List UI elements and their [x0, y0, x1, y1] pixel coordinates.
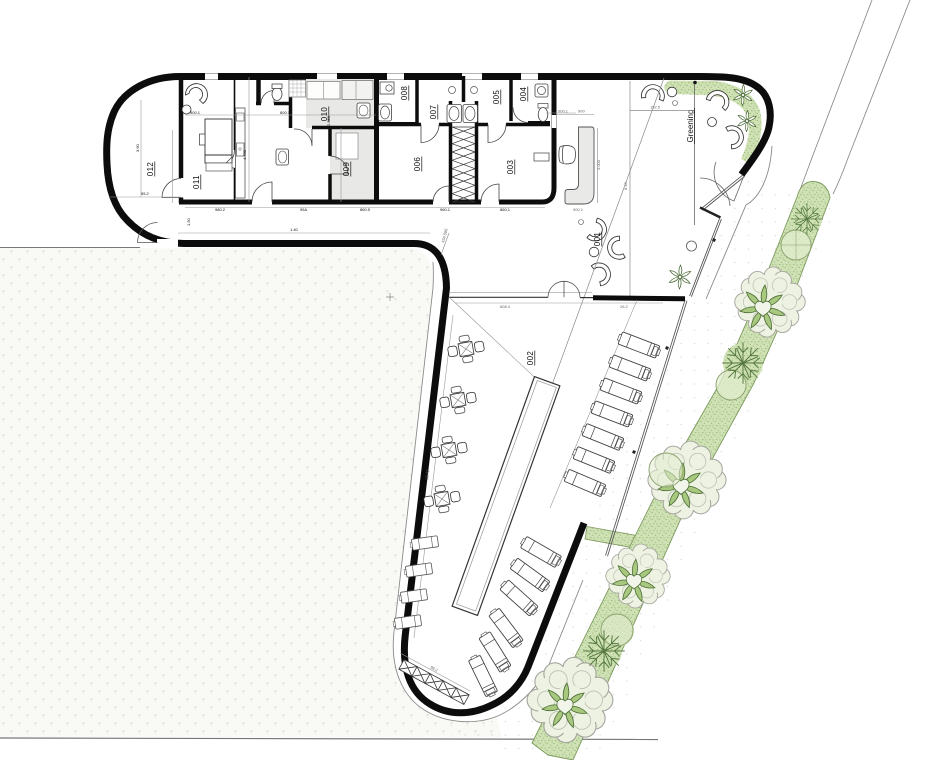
- svg-text:3.90: 3.90: [135, 143, 140, 152]
- svg-text:007: 007: [429, 105, 438, 120]
- svg-text:808.4: 808.4: [500, 304, 511, 309]
- svg-text:960.1: 960.1: [440, 207, 451, 212]
- svg-text:800.1: 800.1: [280, 110, 291, 115]
- svg-text:002: 002: [526, 351, 535, 366]
- svg-text:003: 003: [506, 160, 515, 175]
- svg-text:005: 005: [492, 90, 501, 105]
- svg-text:8.43: 8.43: [623, 181, 628, 190]
- svg-text:008: 008: [400, 86, 409, 101]
- svg-text:900: 900: [578, 109, 585, 114]
- svg-text:001: 001: [593, 232, 602, 247]
- svg-text:860.1: 860.1: [500, 207, 511, 212]
- svg-text:4.730: 4.730: [242, 149, 247, 160]
- svg-text:900.1: 900.1: [573, 207, 584, 212]
- svg-text:95A: 95A: [300, 207, 307, 212]
- svg-text:006: 006: [413, 157, 422, 172]
- svg-text:860.5: 860.5: [360, 207, 371, 212]
- svg-text:2.550: 2.550: [326, 115, 331, 126]
- svg-text:900.1: 900.1: [190, 110, 201, 115]
- svg-text:012: 012: [146, 162, 155, 177]
- svg-text:1.50: 1.50: [186, 217, 191, 226]
- svg-text:009: 009: [342, 162, 351, 177]
- svg-text:000.1: 000.1: [558, 109, 569, 114]
- svg-text:95.2: 95.2: [141, 191, 150, 196]
- svg-text:1.40: 1.40: [290, 227, 299, 232]
- svg-text:980.2: 980.2: [215, 207, 226, 212]
- svg-text:3.000: 3.000: [596, 159, 601, 170]
- svg-text:192.5: 192.5: [650, 105, 661, 110]
- svg-text:004: 004: [519, 87, 528, 102]
- svg-text:26.2: 26.2: [620, 304, 629, 309]
- svg-text:011: 011: [192, 175, 201, 189]
- svg-text:Greening: Greening: [686, 110, 695, 143]
